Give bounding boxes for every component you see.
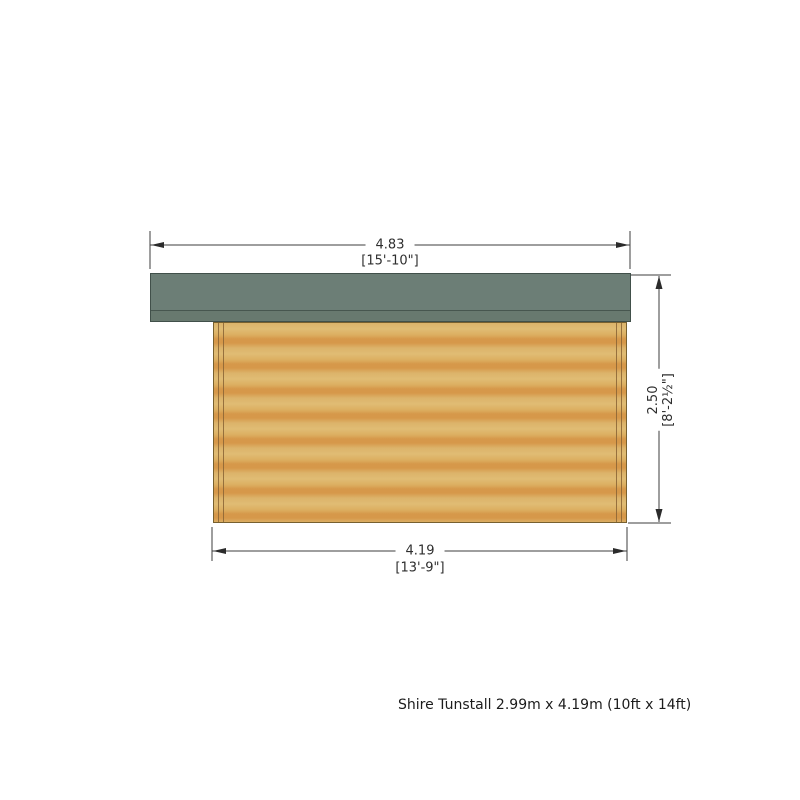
- bottom-dim-arrow-left: [213, 548, 226, 554]
- elevation-diagram: 4.83 [15'-10"] 4.19 [13'-9"] 2.50 [8'-2½…: [0, 0, 800, 800]
- bottom-dim-metric-label: 4.19: [396, 544, 445, 559]
- product-caption: Shire Tunstall 2.99m x 4.19m (10ft x 14f…: [398, 697, 691, 713]
- top-dim-imperial-label: [15'-10"]: [361, 254, 418, 269]
- right-dim-imperial-label: [8'-2½"]: [661, 373, 676, 427]
- right-dim-label: 2.50 [8'-2½"]: [643, 369, 679, 431]
- bottom-dim-arrow-right: [613, 548, 626, 554]
- top-dim-arrow-right: [616, 242, 629, 248]
- bottom-dim-imperial-label: [13'-9"]: [395, 561, 444, 576]
- right-dim-arrow-bottom: [656, 509, 663, 522]
- dimension-lines: [0, 0, 800, 800]
- top-dim-arrow-left: [151, 242, 164, 248]
- top-dim-metric-label: 4.83: [366, 238, 415, 253]
- right-dim-metric-label: 2.50: [646, 373, 661, 427]
- right-dim-arrow-top: [656, 276, 663, 289]
